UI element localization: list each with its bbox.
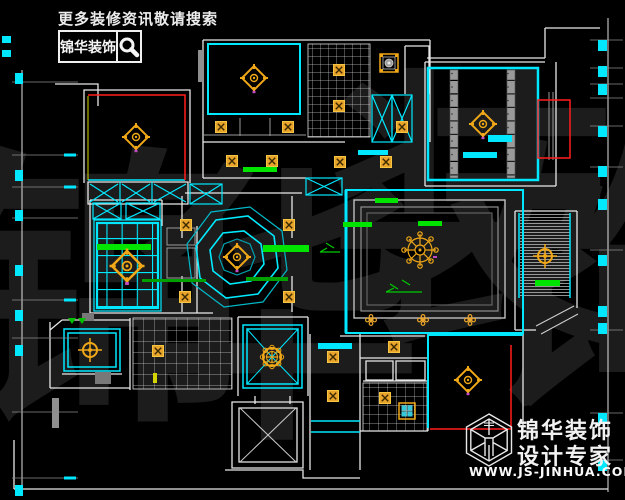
lattice-room-x-boxes: [93, 203, 160, 219]
green-annotation: [386, 280, 422, 292]
diamond-ceiling-light-icon: [469, 110, 497, 138]
stair-lines: [536, 306, 578, 334]
ornate-square-lamp-icon: [380, 54, 398, 72]
flower-downlight-icon: [418, 315, 429, 326]
brand-search-box: 锦华装饰: [58, 30, 142, 63]
door-block: [95, 372, 111, 384]
website-url-text: WWW.JS-JINHUA.COM: [469, 464, 625, 479]
cad-viewport: 锦 华 装 饰: [0, 0, 625, 500]
diamond-ceiling-light-icon: [122, 123, 150, 151]
diamond-ceiling-light-icon: [240, 64, 268, 92]
diamond-ceiling-light-icon: [223, 243, 251, 271]
curtain-strip: [450, 70, 458, 178]
hexagon-cube-logo-icon: [461, 412, 517, 468]
flower-downlight-icon: [366, 315, 377, 326]
magnifier-icon: [116, 32, 140, 61]
cyan-ceiling-features: [2, 36, 570, 432]
diamond-ceiling-light-icon: [454, 366, 482, 394]
chandelier-icon: [402, 232, 438, 268]
curtain-strip: [507, 70, 515, 178]
door-block: [198, 50, 204, 82]
dimension-line-left: [12, 70, 78, 496]
green-annotation: [320, 243, 340, 252]
promo-banner-text: 更多装修资讯敬请搜索: [58, 8, 218, 29]
shaft-x: [240, 408, 296, 462]
flower-downlight-icon: [465, 315, 476, 326]
crosshair-ceiling-light-icon: [78, 338, 102, 362]
ornate-ceiling-light-icon: [260, 345, 283, 368]
search-brand-label: 锦华装饰: [60, 32, 116, 61]
